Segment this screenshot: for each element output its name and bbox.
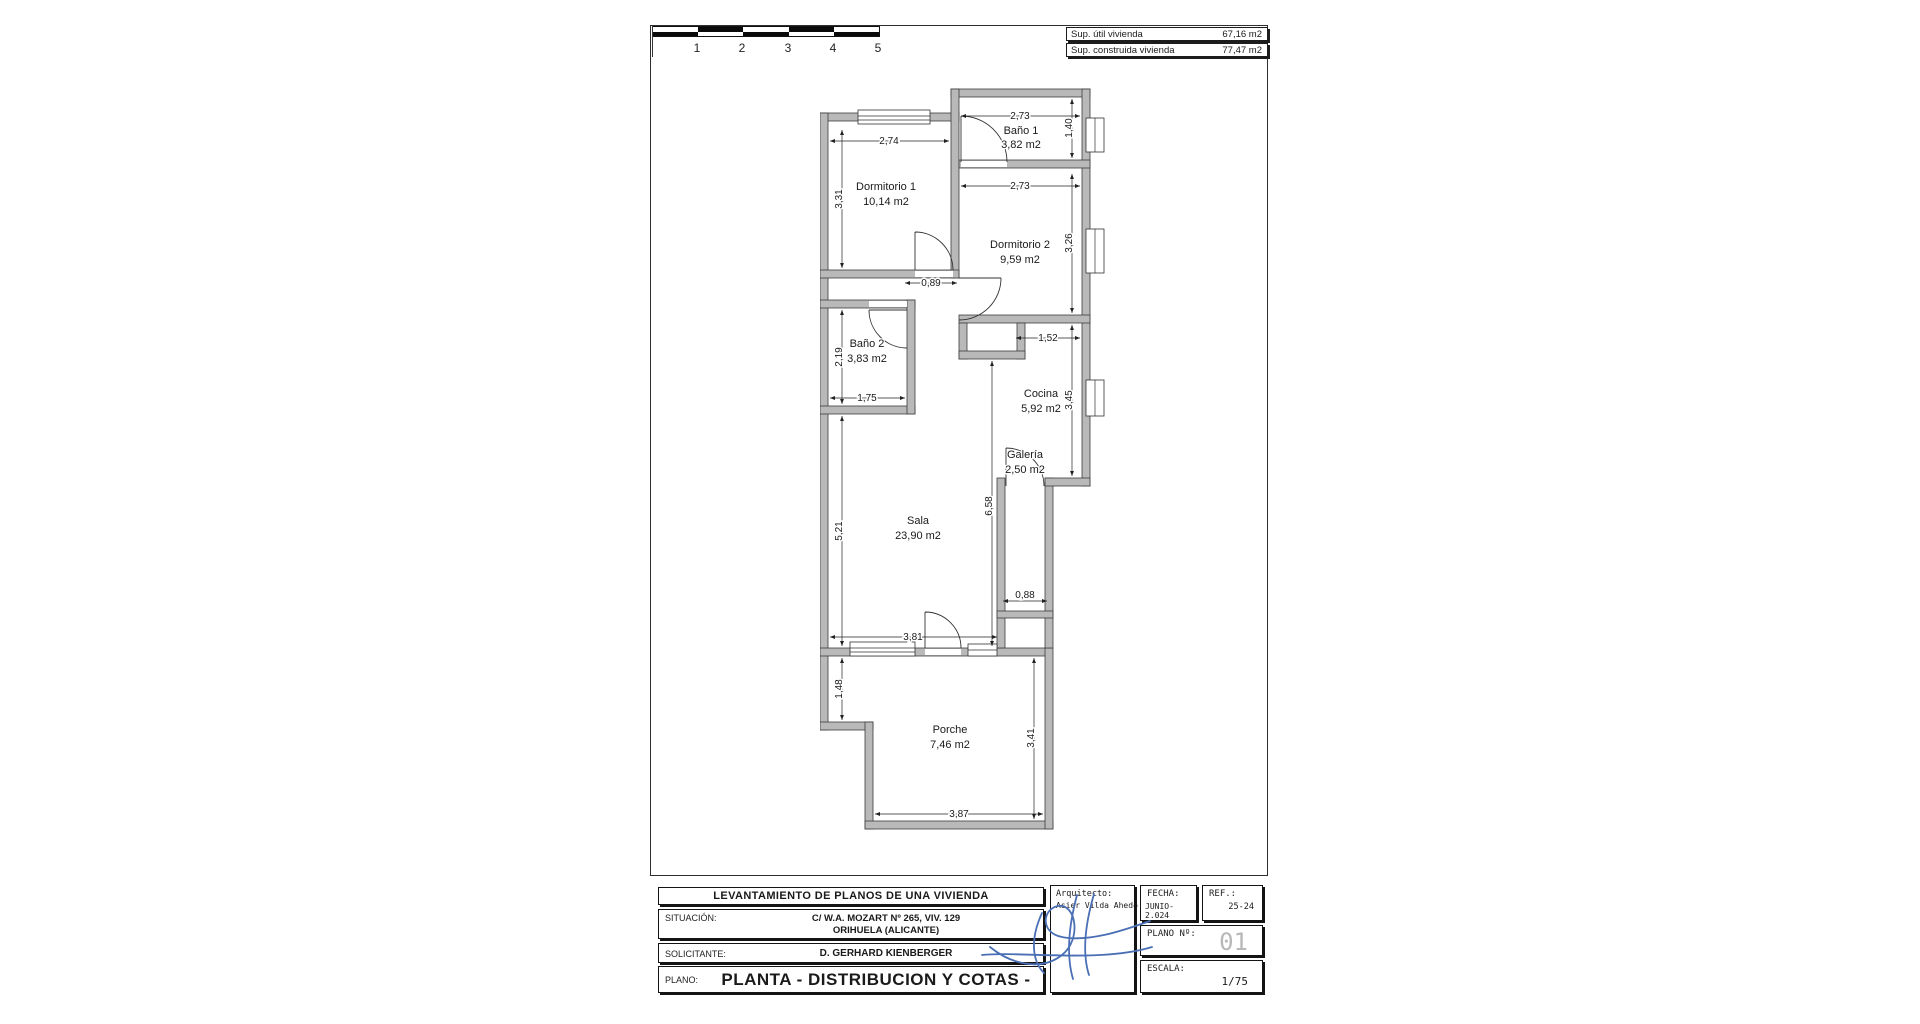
walls — [820, 89, 1090, 829]
scale-number: 4 — [823, 41, 843, 55]
fecha-label: FECHA: — [1147, 889, 1180, 899]
room-area-galeria: 2,50 m2 — [1005, 464, 1045, 476]
ref-value: 25-24 — [1228, 902, 1254, 912]
plano-box: PLANO: PLANTA - DISTRIBUCION Y COTAS - — [658, 966, 1044, 993]
room-label-bano2: Baño 2 — [850, 338, 885, 350]
plano-label: PLANO: — [665, 975, 698, 985]
dim-cocina-height: 3,45 — [1064, 390, 1075, 410]
project-title-box: LEVANTAMIENTO DE PLANOS DE UNA VIVIENDA — [658, 887, 1044, 905]
dim-bano1-width: 2,73 — [1010, 111, 1030, 122]
situacion-label: SITUACIÓN: — [665, 913, 717, 923]
room-label-galeria: Galería — [1007, 449, 1044, 461]
room-area-sala: 23,90 m2 — [895, 530, 941, 542]
dim-sala-mid-height: 6,58 — [984, 496, 995, 516]
scale-seg — [834, 32, 879, 37]
dim-cocina-top: 1,52 — [1038, 333, 1058, 344]
room-label-bano1: Baño 1 — [1004, 125, 1039, 137]
plano-num-label: PLANO Nº: — [1147, 929, 1196, 939]
floor-plan-svg: 2,74 3,31 2,73 1,40 2,73 3,26 0,89 2,19 … — [820, 86, 1110, 838]
scale-seg — [698, 32, 743, 37]
room-area-bano1: 3,82 m2 — [1001, 139, 1041, 151]
dim-hall-width: 0,89 — [921, 278, 941, 289]
dim-dorm2-height: 3,26 — [1064, 233, 1075, 253]
dim-bano2-height: 2,19 — [834, 347, 845, 367]
escala-value: 1/75 — [1222, 975, 1249, 988]
arquitecto-box: Arquitecto: Asier Vilda Ahedo — [1050, 885, 1135, 993]
area-row-label: Sup. útil vivienda — [1071, 29, 1143, 40]
scale-number: 1 — [687, 41, 707, 55]
scale-seg — [743, 32, 788, 37]
area-row-util: Sup. útil vivienda 67,16 m2 — [1066, 27, 1268, 41]
situacion-line1: C/ W.A. MOZART Nº 265, VIV. 129 — [739, 913, 1033, 925]
area-row-value: 67,16 m2 — [1222, 29, 1262, 40]
escala-box: ESCALA: 1/75 — [1140, 960, 1263, 993]
dim-galeria-width: 0,88 — [1015, 590, 1035, 601]
area-row-construida: Sup. construida vivienda 77,47 m2 — [1066, 43, 1268, 57]
graphic-scale-bar — [652, 26, 880, 37]
page: { "scale_bar": { "labels": ["1", "2", "3… — [0, 0, 1920, 1024]
room-area-porche: 7,46 m2 — [930, 739, 970, 751]
solicitante-label: SOLICITANTE: — [665, 949, 726, 959]
ref-label: REF.: — [1209, 889, 1236, 899]
plano-num-box: PLANO Nº: 01 — [1140, 925, 1263, 956]
escala-label: ESCALA: — [1147, 964, 1185, 974]
situacion-box: SITUACIÓN: C/ W.A. MOZART Nº 265, VIV. 1… — [658, 909, 1044, 939]
area-row-value: 77,47 m2 — [1222, 45, 1262, 56]
room-label-sala: Sala — [907, 515, 930, 527]
situacion-line2: ORIHUELA (ALICANTE) — [739, 925, 1033, 937]
title-block: LEVANTAMIENTO DE PLANOS DE UNA VIVIENDA … — [650, 875, 1268, 993]
room-area-dorm2: 9,59 m2 — [1000, 254, 1040, 266]
room-area-dorm1: 10,14 m2 — [863, 196, 909, 208]
dim-sala-width: 3,81 — [903, 632, 923, 643]
scale-number: 3 — [778, 41, 798, 55]
scale-seg — [653, 32, 698, 37]
dim-dorm1-height: 3,31 — [834, 189, 845, 209]
project-title: LEVANTAMIENTO DE PLANOS DE UNA VIVIENDA — [659, 888, 1043, 904]
scale-number: 2 — [732, 41, 752, 55]
dim-dorm1-width: 2,74 — [879, 136, 899, 147]
scale-seg — [789, 32, 834, 37]
solicitante-box: SOLICITANTE: D. GERHARD KIENBERGER — [658, 943, 1044, 963]
dim-porche-left-height: 1,48 — [834, 679, 845, 699]
dim-bano2-width: 1,75 — [857, 393, 877, 404]
dim-dorm2-width: 2,73 — [1010, 181, 1030, 192]
room-label-dorm1: Dormitorio 1 — [856, 181, 916, 193]
area-row-label: Sup. construida vivienda — [1071, 45, 1175, 56]
surface-area-table: Sup. útil vivienda 67,16 m2 Sup. constru… — [1066, 27, 1268, 59]
room-area-bano2: 3,83 m2 — [847, 353, 887, 365]
solicitante-value: D. GERHARD KIENBERGER — [739, 948, 1033, 959]
room-label-cocina: Cocina — [1024, 388, 1059, 400]
dim-porche-height: 3,41 — [1026, 728, 1037, 748]
scale-number: 5 — [868, 41, 888, 55]
dim-porche-width: 3,87 — [949, 809, 969, 820]
room-label-dorm2: Dormitorio 2 — [990, 239, 1050, 251]
dim-bano1-height: 1,40 — [1064, 118, 1075, 138]
fecha-box: FECHA: JUNIO-2.024 — [1140, 885, 1197, 921]
plano-value: PLANTA - DISTRIBUCION Y COTAS - — [719, 970, 1033, 990]
ref-box: REF.: 25-24 — [1202, 885, 1263, 921]
arquitecto-label: Arquitecto: — [1056, 889, 1112, 899]
dim-sala-height: 5,21 — [834, 521, 845, 541]
plano-num-value: 01 — [1219, 928, 1248, 956]
fecha-value: JUNIO-2.024 — [1145, 902, 1196, 920]
arquitecto-value: Asier Vilda Ahedo — [1056, 901, 1138, 910]
room-area-cocina: 5,92 m2 — [1021, 403, 1061, 415]
room-label-porche: Porche — [933, 724, 968, 736]
scale-bar-tick — [652, 26, 653, 57]
